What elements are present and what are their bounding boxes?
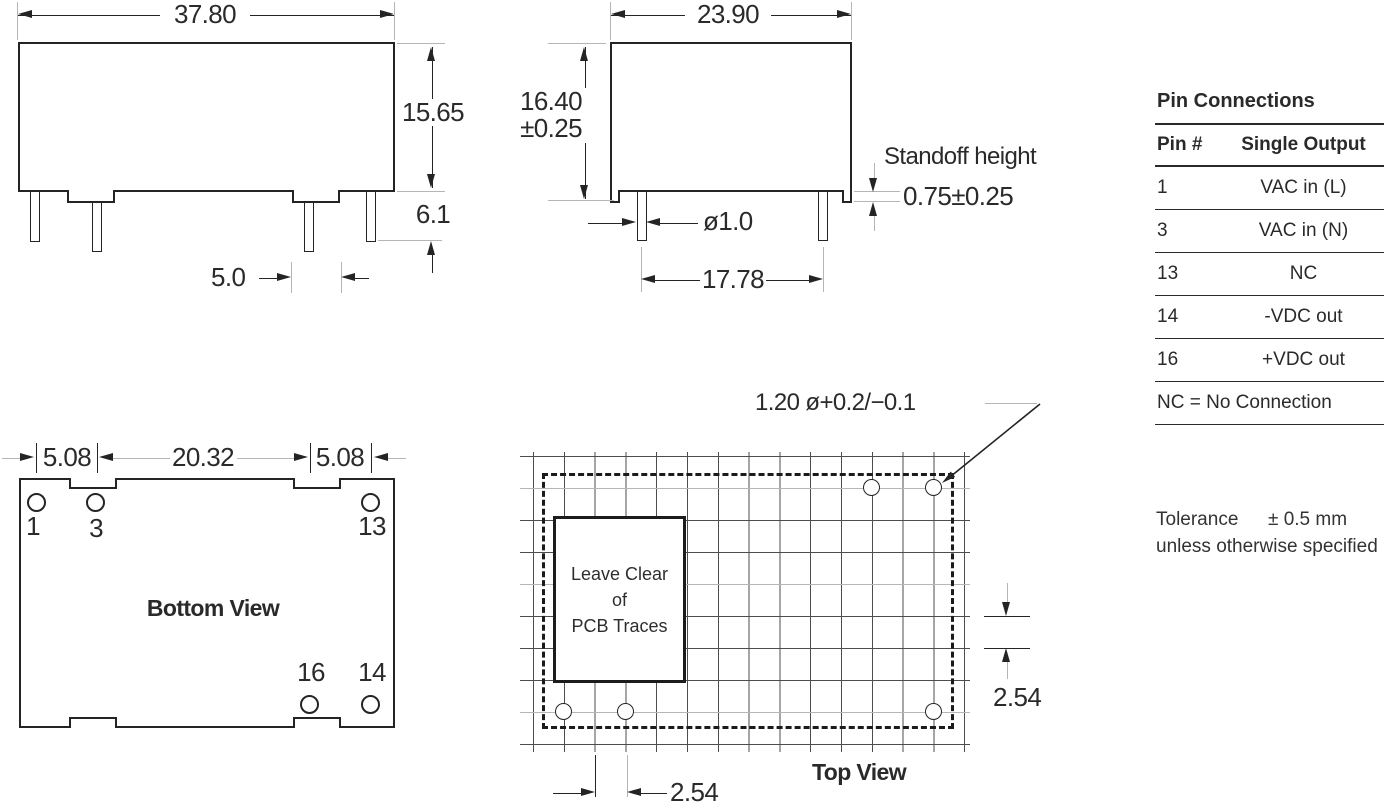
dim-tick <box>371 443 372 473</box>
front-height-dim: 15.65 <box>399 99 467 126</box>
front-foot-width-dim: 5.0 <box>211 264 245 291</box>
case-notch <box>293 478 341 489</box>
pcb-hole-14 <box>863 479 880 496</box>
dim-line <box>553 793 582 794</box>
arrowhead <box>341 273 355 281</box>
front-standoff-foot <box>292 190 340 203</box>
arrowhead <box>580 47 588 61</box>
extension-line <box>610 2 611 40</box>
keepout-zone: Leave Clear of PCB Traces <box>553 516 686 683</box>
bottom-dim-center: 20.32 <box>171 444 235 471</box>
pin-hole-1 <box>27 493 46 512</box>
case-notch <box>69 478 117 489</box>
pin-label-3: 3 <box>86 515 106 542</box>
extension-line <box>397 191 445 192</box>
front-view-body <box>18 42 395 192</box>
arrowhead <box>622 218 636 226</box>
pin-hole-16 <box>300 695 319 714</box>
arrowhead <box>627 788 641 796</box>
dim-tick <box>310 443 311 473</box>
pcb-hole-3 <box>617 703 634 720</box>
dim-line <box>259 278 278 279</box>
hole-diameter-callout: 1.20 ø+0.2/−0.1 <box>755 390 915 415</box>
extension-line <box>548 200 614 201</box>
side-pin-back <box>818 192 828 241</box>
tolerance-value: ± 0.5 mm <box>1268 506 1347 533</box>
pcb-hole-1 <box>555 703 572 720</box>
top-col-pitch-dim: 2.54 <box>670 779 718 806</box>
arrowhead <box>869 202 877 216</box>
arrowhead <box>1002 602 1010 616</box>
table-row: 13 NC <box>1155 253 1384 296</box>
dim-line <box>874 216 875 231</box>
pin-label-14: 14 <box>358 659 386 686</box>
side-pin-front <box>637 192 647 241</box>
pin-pitch-dim: 17.78 <box>700 266 766 293</box>
standoff-height-dim: 0.75±0.25 <box>903 183 1013 210</box>
mechanical-drawing-page: 37.80 15.65 6.1 5.0 23.90 16.40 ±0.25 S <box>0 0 1384 808</box>
standoff-height-label: Standoff height <box>884 144 1036 169</box>
dim-tick <box>36 443 37 473</box>
table-row: 16 +VDC out <box>1155 339 1384 382</box>
pin-label-16: 16 <box>297 659 325 686</box>
arrowhead <box>809 275 823 283</box>
extension-line <box>291 262 292 293</box>
arrowhead <box>18 10 32 18</box>
arrowhead <box>646 218 660 226</box>
keepout-text: of <box>612 587 627 613</box>
front-pin-3 <box>92 203 102 252</box>
side-width-dim: 23.90 <box>685 1 771 28</box>
front-pin-16 <box>304 203 314 252</box>
dim-line <box>355 278 369 279</box>
arrowhead <box>374 453 388 461</box>
extension-line <box>851 2 852 40</box>
extension-line <box>17 2 18 40</box>
pin-connections-table: Pin Connections Pin # Single Output 1 VA… <box>1155 88 1384 425</box>
dim-line <box>766 280 810 281</box>
dim-tick <box>984 616 1030 617</box>
extension-line <box>641 247 642 292</box>
dim-line <box>2 458 21 459</box>
extension-line <box>397 43 445 44</box>
front-pin-length-dim: 6.1 <box>407 201 459 228</box>
dim-line <box>641 793 667 794</box>
arrowhead <box>641 275 655 283</box>
top-row-pitch-dim: 2.54 <box>993 684 1041 711</box>
pin-diameter-dim: ø1.0 <box>703 208 753 235</box>
pin-hole-3 <box>86 493 105 512</box>
keepout-text: Leave Clear <box>571 561 668 587</box>
front-pin-14 <box>366 192 376 242</box>
front-pin-1 <box>30 192 40 242</box>
table-row: 1 VAC in (L) <box>1155 167 1384 210</box>
side-view-body <box>610 42 852 192</box>
leader-arrow <box>930 398 1050 490</box>
bottom-dim-right: 5.08 <box>312 444 368 471</box>
dim-line <box>432 255 433 273</box>
dim-line <box>237 458 294 459</box>
side-standoff-foot <box>610 190 620 203</box>
extension-line <box>595 755 596 797</box>
table-header: Pin # Single Output <box>1155 125 1384 167</box>
pin-hole-14 <box>361 695 380 714</box>
table-row: 3 VAC in (N) <box>1155 210 1384 253</box>
arrowhead <box>99 453 113 461</box>
front-standoff-foot <box>67 190 115 203</box>
pin-label-1: 1 <box>23 513 43 540</box>
side-height-dim: 16.40 ±0.25 <box>514 88 588 143</box>
extension-line <box>854 201 900 202</box>
tolerance-line2: unless otherwise specified <box>1156 533 1384 560</box>
arrowhead <box>20 453 34 461</box>
side-standoff-foot <box>842 190 852 203</box>
dim-line <box>874 163 875 178</box>
bottom-dim-left: 5.08 <box>39 444 95 471</box>
dim-line <box>388 458 406 459</box>
front-width-dim: 37.80 <box>160 1 250 28</box>
dim-line <box>1007 583 1008 602</box>
tolerance-note: Tolerance ± 0.5 mm unless otherwise spec… <box>1156 506 1384 560</box>
pcb-hole-13 <box>925 703 942 720</box>
pin-hole-13 <box>361 493 380 512</box>
tolerance-label: Tolerance <box>1156 509 1238 530</box>
arrowhead <box>380 10 394 18</box>
arrowhead <box>611 10 625 18</box>
arrowhead <box>1002 648 1010 662</box>
arrowhead <box>277 273 291 281</box>
extension-line <box>823 247 824 292</box>
arrowhead <box>427 241 435 255</box>
pin-label-13: 13 <box>358 513 386 540</box>
bottom-view-title: Bottom View <box>142 596 284 620</box>
case-notch <box>293 717 341 728</box>
arrowhead <box>837 10 851 18</box>
dim-line <box>660 223 698 224</box>
dim-line <box>113 458 170 459</box>
table-title: Pin Connections <box>1155 88 1384 125</box>
dim-line <box>654 280 700 281</box>
arrowhead <box>580 185 588 199</box>
keepout-text: PCB Traces <box>571 613 667 639</box>
case-notch <box>69 717 117 728</box>
dim-line <box>1007 662 1008 679</box>
dim-tick <box>97 443 98 473</box>
extension-line <box>394 2 395 40</box>
top-view-title: Top View <box>812 760 906 784</box>
arrowhead <box>427 174 435 188</box>
arrowhead <box>869 178 877 192</box>
arrowhead <box>427 47 435 61</box>
table-footnote: NC = No Connection <box>1155 382 1384 425</box>
arrowhead <box>581 788 595 796</box>
extension-line <box>548 43 606 44</box>
header-output: Single Output <box>1225 134 1382 156</box>
arrowhead <box>294 453 308 461</box>
extension-line <box>854 191 900 192</box>
header-pin: Pin # <box>1157 134 1225 156</box>
table-row: 14 -VDC out <box>1155 296 1384 339</box>
dim-line <box>588 223 623 224</box>
